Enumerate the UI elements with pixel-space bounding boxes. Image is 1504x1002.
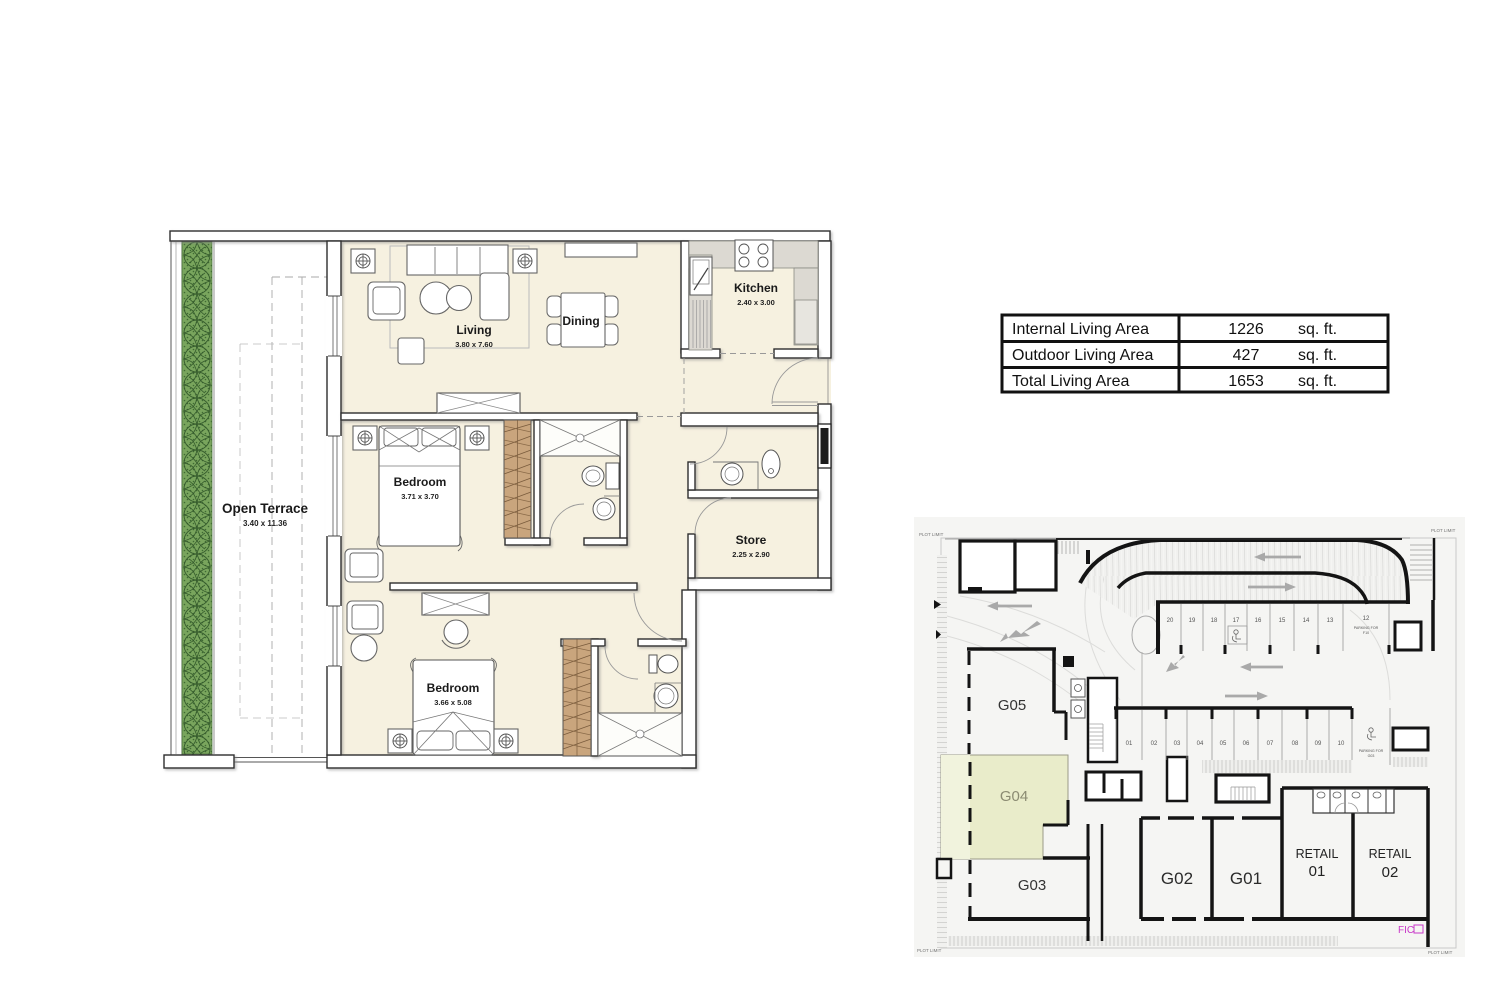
svg-text:2.25 x 2.90: 2.25 x 2.90: [732, 550, 770, 559]
svg-text:Open Terrace: Open Terrace: [222, 501, 309, 516]
svg-text:3.66 x 5.08: 3.66 x 5.08: [434, 698, 472, 707]
svg-text:PLOT LIMIT: PLOT LIMIT: [919, 532, 944, 537]
svg-text:Bedroom: Bedroom: [427, 681, 480, 695]
svg-text:F10: F10: [1363, 631, 1369, 635]
svg-text:20: 20: [1167, 618, 1174, 624]
svg-text:13: 13: [1327, 618, 1334, 624]
svg-text:17: 17: [1233, 618, 1240, 624]
svg-text:sq. ft.: sq. ft.: [1298, 347, 1337, 364]
svg-text:427: 427: [1233, 347, 1260, 364]
svg-text:12: 12: [1363, 616, 1370, 622]
svg-text:G04: G04: [1000, 788, 1028, 805]
svg-text:RETAIL: RETAIL: [1369, 847, 1412, 861]
svg-text:Kitchen: Kitchen: [734, 281, 778, 295]
svg-text:1226: 1226: [1228, 321, 1264, 338]
svg-text:Dining: Dining: [562, 314, 599, 328]
svg-text:14: 14: [1303, 618, 1310, 624]
svg-text:PLOT LIMIT: PLOT LIMIT: [1428, 950, 1453, 955]
svg-text:Outdoor Living Area: Outdoor Living Area: [1012, 347, 1154, 364]
svg-text:04: 04: [1197, 741, 1204, 747]
svg-text:01: 01: [1126, 741, 1133, 747]
svg-text:02: 02: [1151, 741, 1158, 747]
svg-text:sq. ft.: sq. ft.: [1298, 373, 1337, 390]
svg-text:G01: G01: [1230, 869, 1262, 888]
svg-text:10: 10: [1338, 741, 1345, 747]
svg-text:2.40 x 3.00: 2.40 x 3.00: [737, 298, 775, 307]
svg-text:08: 08: [1292, 741, 1299, 747]
svg-text:RETAIL: RETAIL: [1296, 847, 1339, 861]
svg-text:Bedroom: Bedroom: [394, 475, 447, 489]
svg-text:G02: G02: [1161, 869, 1193, 888]
svg-text:01: 01: [1309, 863, 1326, 880]
svg-text:sq. ft.: sq. ft.: [1298, 321, 1337, 338]
svg-text:Living: Living: [456, 323, 491, 337]
svg-text:05: 05: [1220, 741, 1227, 747]
svg-text:G03: G03: [1368, 754, 1375, 758]
svg-text:Store: Store: [736, 533, 767, 547]
svg-text:09: 09: [1315, 741, 1322, 747]
svg-text:3.40 x 11.36: 3.40 x 11.36: [243, 519, 288, 528]
svg-text:18: 18: [1211, 618, 1218, 624]
svg-text:PLOT LIMIT: PLOT LIMIT: [917, 948, 942, 953]
svg-text:07: 07: [1267, 741, 1274, 747]
svg-text:1653: 1653: [1228, 373, 1264, 390]
svg-text:06: 06: [1243, 741, 1250, 747]
svg-text:Internal Living Area: Internal Living Area: [1012, 321, 1149, 338]
svg-text:PARKING FOR: PARKING FOR: [1354, 626, 1379, 630]
svg-text:PARKING FOR: PARKING FOR: [1359, 749, 1384, 753]
svg-text:15: 15: [1279, 618, 1286, 624]
svg-text:G03: G03: [1018, 877, 1046, 894]
svg-text:3.80 x 7.60: 3.80 x 7.60: [455, 340, 493, 349]
svg-text:03: 03: [1174, 741, 1181, 747]
svg-text:G05: G05: [998, 697, 1026, 714]
svg-text:19: 19: [1189, 618, 1196, 624]
svg-text:02: 02: [1382, 864, 1399, 881]
svg-text:Total Living Area: Total Living Area: [1012, 373, 1130, 390]
svg-text:16: 16: [1255, 618, 1262, 624]
svg-text:3.71 x 3.70: 3.71 x 3.70: [401, 492, 439, 501]
svg-text:PLOT LIMIT: PLOT LIMIT: [1431, 528, 1456, 533]
svg-text:FIC: FIC: [1398, 925, 1414, 936]
